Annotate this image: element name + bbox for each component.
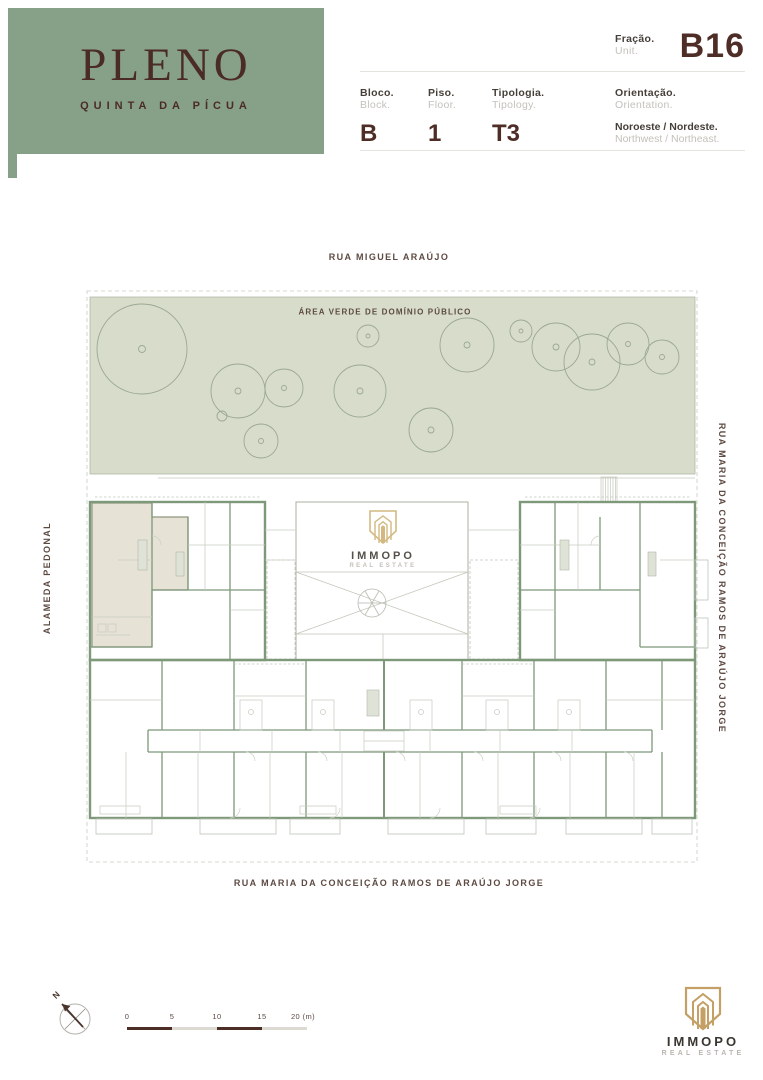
- green-area: [90, 297, 695, 474]
- compass-icon: [60, 1004, 90, 1034]
- street-label-bottom: RUA MARIA DA CONCEIÇÃO RAMOS DE ARAÚJO J…: [234, 878, 544, 888]
- courtyard-logo-tagline: REAL ESTATE: [313, 563, 453, 569]
- floor-label-en: Floor.: [428, 99, 456, 111]
- unit-plan-sheet: PLENO QUINTA DA PÍCUA Fração. Unit. B16 …: [0, 0, 763, 1080]
- orientation-value-pt: Noroeste / Nordeste.: [615, 121, 719, 133]
- scale-tick: 0: [125, 1012, 130, 1021]
- brand-name: PLENO: [8, 38, 324, 92]
- block-label-en: Block.: [360, 99, 394, 111]
- fraction-value: B16: [680, 27, 745, 66]
- brand-subtitle: QUINTA DA PÍCUA: [8, 100, 324, 112]
- footer-logo-name: IMMOPO: [643, 1034, 763, 1049]
- fraction-label-en: Unit.: [615, 45, 654, 57]
- unit-info-header: Fração. Unit. B16 Bloco. Block. B Piso. …: [360, 25, 745, 151]
- orientation-field: Orientação. Orientation. Noroeste / Nord…: [615, 87, 719, 145]
- site-plan: [0, 0, 763, 1080]
- street-label-right: RUA MARIA DA CONCEIÇÃO RAMOS DE ARAÚJO J…: [717, 423, 727, 733]
- floor-value: 1: [428, 120, 456, 148]
- divider: [360, 71, 745, 72]
- scale-tick: 15: [257, 1012, 266, 1021]
- block-label-pt: Bloco.: [360, 87, 394, 99]
- scale-tick: 10: [212, 1012, 221, 1021]
- brand-block: PLENO QUINTA DA PÍCUA: [8, 8, 324, 154]
- street-label-left: ALAMEDA PEDONAL: [42, 522, 52, 634]
- scale-tick: 20 (m): [291, 1012, 315, 1021]
- footer-logo-tagline: REAL ESTATE: [643, 1050, 763, 1057]
- typology-label-pt: Tipologia.: [492, 87, 544, 99]
- scale-tick: 5: [170, 1012, 175, 1021]
- block-field: Bloco. Block. B: [360, 87, 394, 148]
- courtyard-logo-name: IMMOPO: [313, 550, 453, 562]
- brand-block-step: [8, 154, 17, 178]
- orientation-label-pt: Orientação.: [615, 87, 719, 99]
- typology-label-en: Tipology.: [492, 99, 544, 111]
- floor-label-pt: Piso.: [428, 87, 456, 99]
- typology-field: Tipologia. Tipology. T3: [492, 87, 544, 148]
- typology-value: T3: [492, 120, 544, 148]
- orientation-value-en: Northwest / Northeast.: [615, 133, 719, 145]
- fraction-label-pt: Fração.: [615, 33, 654, 45]
- orientation-label-en: Orientation.: [615, 99, 719, 111]
- green-area-label: ÁREA VERDE DE DOMÍNIO PÚBLICO: [299, 308, 472, 317]
- immopo-footer-shield-icon: [686, 988, 720, 1029]
- floor-field: Piso. Floor. 1: [428, 87, 456, 148]
- scale-bar: 0 5 10 15 20 (m): [122, 1012, 322, 1034]
- block-value: B: [360, 120, 394, 148]
- divider: [360, 150, 745, 151]
- street-label-top: RUA MIGUEL ARAÚJO: [329, 252, 449, 262]
- scale-bar-segments: [127, 1027, 307, 1030]
